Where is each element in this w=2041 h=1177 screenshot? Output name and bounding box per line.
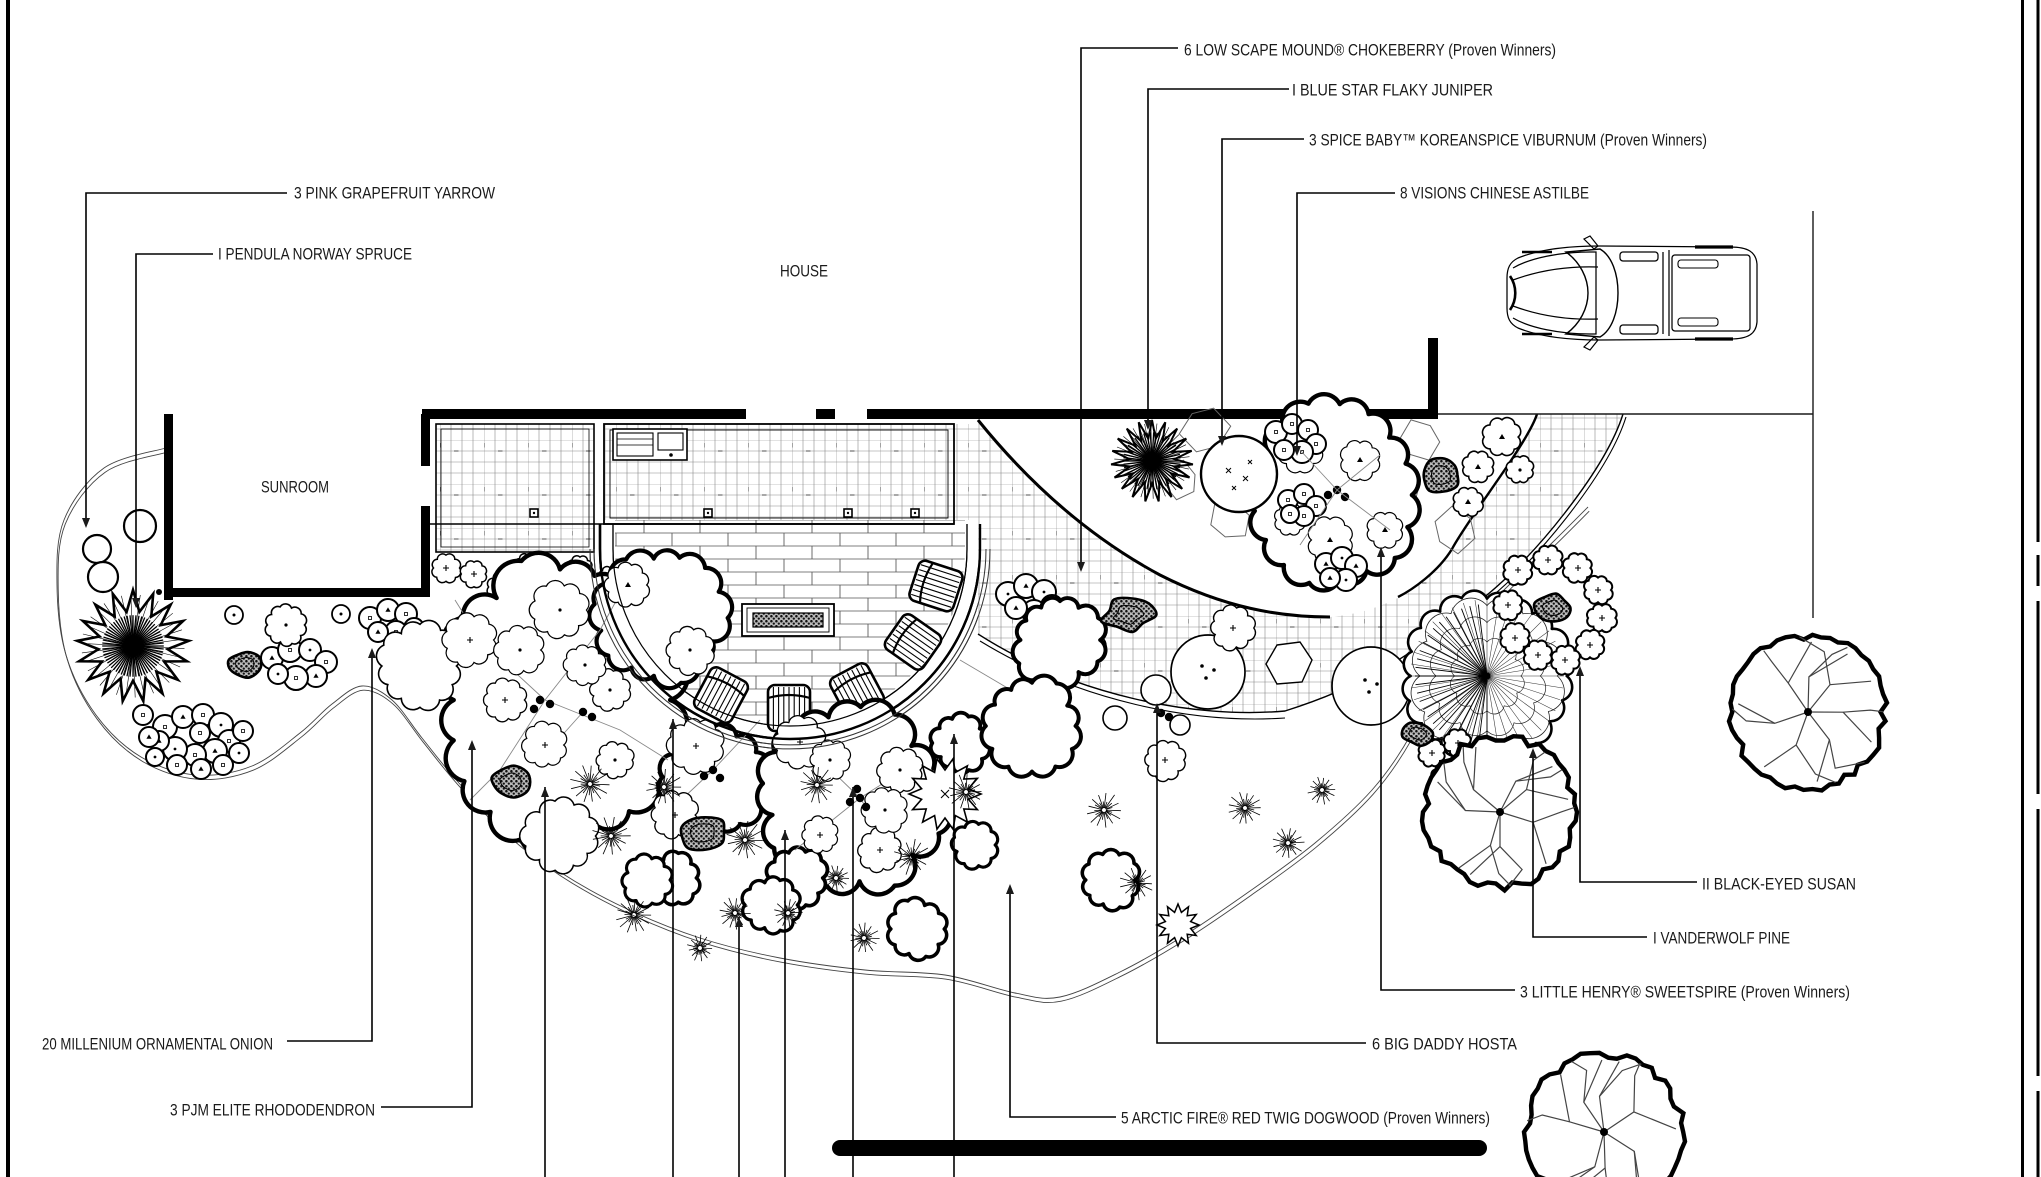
- svg-text:I PENDULA NORWAY SPRUCE: I PENDULA NORWAY SPRUCE: [218, 246, 412, 264]
- svg-text:3 PJM ELITE RHODODENDRON: 3 PJM ELITE RHODODENDRON: [170, 1102, 375, 1120]
- svg-text:I VANDERWOLF PINE: I VANDERWOLF PINE: [1653, 930, 1790, 948]
- svg-text:8 VISIONS CHINESE ASTILBE: 8 VISIONS CHINESE ASTILBE: [1400, 185, 1589, 203]
- svg-text:6 LOW SCAPE MOUND® CHOKEBERRY: 6 LOW SCAPE MOUND® CHOKEBERRY (Proven Wi…: [1184, 42, 1556, 60]
- svg-text:II BLACK-EYED SUSAN: II BLACK-EYED SUSAN: [1702, 876, 1856, 894]
- svg-text:I BLUE STAR FLAKY JUNIPER: I BLUE STAR FLAKY JUNIPER: [1292, 82, 1493, 100]
- svg-text:3 LITTLE HENRY® SWEETSPIRE (Pr: 3 LITTLE HENRY® SWEETSPIRE (Proven Winne…: [1520, 984, 1850, 1002]
- svg-text:SUNROOM: SUNROOM: [261, 478, 329, 497]
- svg-text:6 BIG DADDY HOSTA: 6 BIG DADDY HOSTA: [1372, 1036, 1517, 1054]
- svg-text:3 SPICE BABY™ KOREANSPICE VIBU: 3 SPICE BABY™ KOREANSPICE VIBURNUM (Prov…: [1309, 132, 1707, 150]
- svg-text:3 PINK GRAPEFRUIT YARROW: 3 PINK GRAPEFRUIT YARROW: [294, 185, 495, 203]
- svg-text:HOUSE: HOUSE: [780, 262, 828, 281]
- svg-text:20 MILLENIUM ORNAMENTAL ONION: 20 MILLENIUM ORNAMENTAL ONION: [42, 1036, 273, 1054]
- svg-text:5 ARCTIC FIRE® RED TWIG DOGWOO: 5 ARCTIC FIRE® RED TWIG DOGWOOD (Proven …: [1121, 1110, 1490, 1128]
